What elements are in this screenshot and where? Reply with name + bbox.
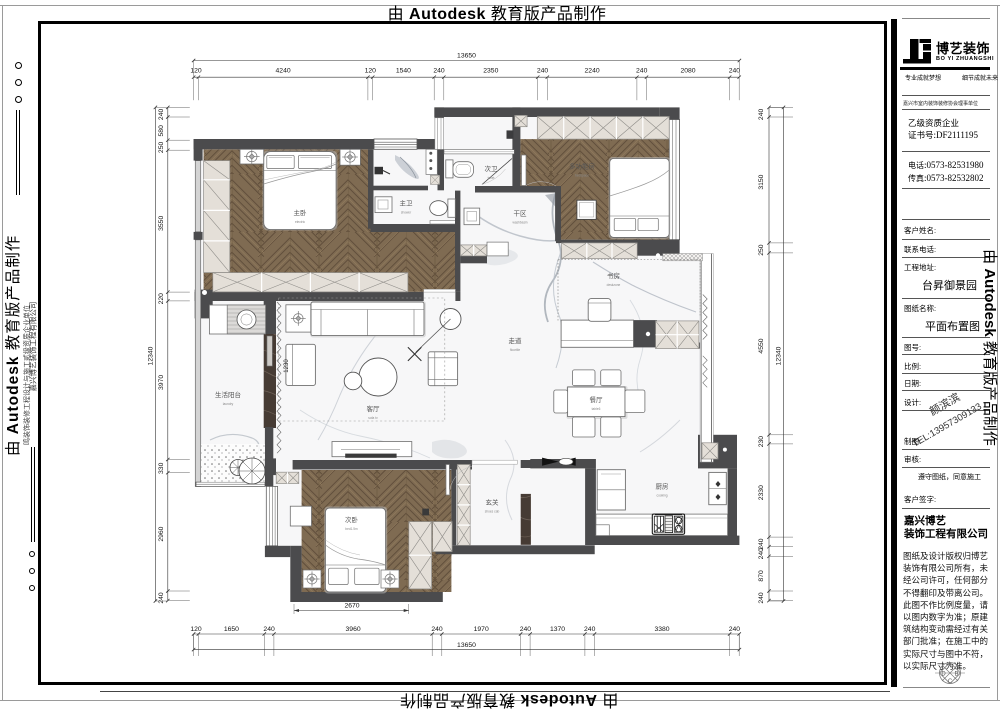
- svg-text:4550: 4550: [758, 338, 765, 353]
- svg-text:240: 240: [636, 68, 648, 75]
- svg-text:玄关: 玄关: [486, 498, 500, 507]
- svg-text:240: 240: [758, 592, 765, 604]
- svg-text:330: 330: [158, 462, 165, 474]
- svg-text:12340: 12340: [776, 346, 783, 365]
- svg-text:2960: 2960: [158, 526, 165, 541]
- svg-text:bed1.5m: bed1.5m: [345, 527, 358, 531]
- svg-text:生活阳台: 生活阳台: [215, 390, 241, 399]
- svg-text:13650: 13650: [457, 642, 476, 649]
- svg-text:250: 250: [158, 142, 165, 154]
- svg-text:3550: 3550: [158, 216, 165, 231]
- svg-text:240: 240: [729, 68, 741, 75]
- svg-text:240: 240: [520, 626, 532, 633]
- svg-text:D: D: [941, 672, 946, 678]
- svg-text:250: 250: [758, 244, 765, 256]
- svg-text:240: 240: [729, 626, 741, 633]
- svg-text:240: 240: [584, 626, 596, 633]
- svg-text:走道: 走道: [509, 336, 523, 345]
- svg-text:shoes cab: shoes cab: [485, 510, 500, 514]
- svg-text:1540: 1540: [396, 68, 411, 75]
- svg-text:table6: table6: [592, 407, 601, 411]
- svg-text:2350: 2350: [483, 68, 498, 75]
- svg-text:主卧: 主卧: [294, 208, 308, 217]
- svg-text:230: 230: [758, 436, 765, 448]
- svg-text:580: 580: [158, 125, 165, 137]
- svg-text:240: 240: [431, 626, 443, 633]
- svg-text:次卧: 次卧: [345, 515, 359, 524]
- svg-text:240: 240: [433, 68, 445, 75]
- svg-text:washbasin: washbasin: [512, 221, 527, 225]
- svg-text:主卫: 主卫: [400, 199, 414, 208]
- svg-text:240: 240: [758, 548, 765, 560]
- svg-text:次卫: 次卫: [485, 164, 499, 173]
- svg-text:3960: 3960: [346, 626, 361, 633]
- svg-text:120: 120: [190, 68, 202, 75]
- svg-text:cooking: cooking: [657, 494, 668, 498]
- svg-text:1370: 1370: [550, 626, 565, 633]
- svg-text:deskzone: deskzone: [607, 283, 621, 287]
- svg-text:A: A: [948, 664, 952, 670]
- svg-text:2670: 2670: [344, 602, 359, 609]
- svg-text:laundry: laundry: [223, 402, 234, 406]
- svg-text:2080: 2080: [680, 68, 695, 75]
- svg-text:240: 240: [263, 626, 275, 633]
- svg-text:B: B: [954, 672, 958, 678]
- svg-text:shower: shower: [401, 211, 412, 215]
- svg-text:120: 120: [365, 68, 377, 75]
- svg-text:4240: 4240: [276, 68, 291, 75]
- svg-text:餐厅: 餐厅: [590, 395, 604, 404]
- svg-text:1650: 1650: [224, 626, 239, 633]
- svg-text:220: 220: [158, 293, 165, 305]
- svg-text:多功能房: 多功能房: [569, 162, 595, 171]
- svg-text:sofa tv: sofa tv: [368, 416, 378, 420]
- svg-text:floortile: floortile: [510, 348, 521, 352]
- svg-text:toilet: toilet: [488, 176, 495, 180]
- svg-text:240: 240: [158, 109, 165, 121]
- svg-text:客厅: 客厅: [367, 404, 381, 413]
- svg-text:bedspace: bedspace: [575, 174, 589, 178]
- svg-text:240: 240: [537, 68, 549, 75]
- svg-text:12340: 12340: [148, 346, 155, 365]
- svg-text:3380: 3380: [654, 626, 669, 633]
- svg-text:2240: 2240: [585, 68, 600, 75]
- svg-text:240: 240: [158, 592, 165, 604]
- svg-text:C: C: [948, 679, 953, 685]
- svg-text:书房: 书房: [607, 271, 620, 280]
- svg-text:1230: 1230: [284, 359, 290, 373]
- svg-text:1970: 1970: [474, 626, 489, 633]
- svg-text:干区: 干区: [514, 210, 528, 218]
- svg-text:240: 240: [758, 109, 765, 121]
- svg-text:3970: 3970: [158, 375, 165, 390]
- svg-text:厨房: 厨房: [656, 482, 669, 491]
- svg-text:electric: electric: [295, 220, 306, 224]
- svg-text:13650: 13650: [457, 53, 476, 60]
- svg-text:870: 870: [758, 570, 765, 582]
- svg-text:120: 120: [190, 626, 202, 633]
- svg-text:2330: 2330: [758, 485, 765, 500]
- svg-text:3150: 3150: [758, 174, 765, 189]
